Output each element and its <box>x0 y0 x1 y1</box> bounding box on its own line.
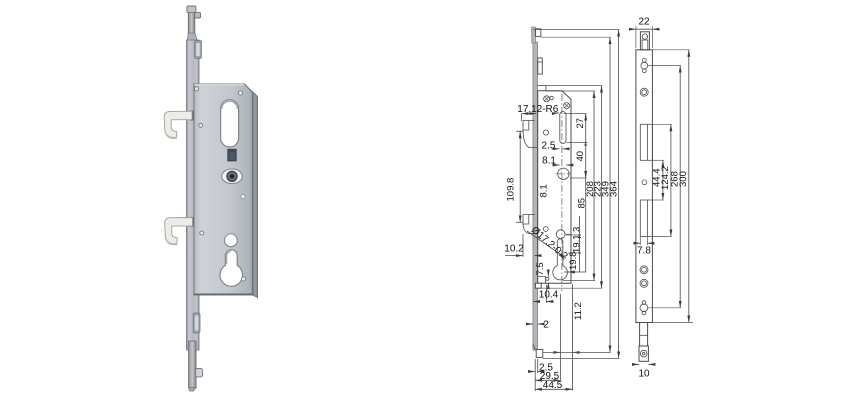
svg-text:40: 40 <box>575 151 586 162</box>
svg-text:7.5: 7.5 <box>535 262 546 275</box>
svg-text:22: 22 <box>638 17 650 28</box>
svg-text:2: 2 <box>543 320 549 331</box>
svg-text:8.1: 8.1 <box>539 184 550 197</box>
svg-text:3: 3 <box>571 227 582 232</box>
svg-text:27: 27 <box>575 118 586 129</box>
svg-text:10.2: 10.2 <box>504 244 524 255</box>
svg-text:19.8: 19.8 <box>568 252 579 271</box>
svg-text:109.8: 109.8 <box>506 178 517 202</box>
svg-text:10.4: 10.4 <box>539 290 559 301</box>
svg-text:300: 300 <box>678 171 689 187</box>
svg-text:10: 10 <box>638 369 650 380</box>
svg-text:7.8: 7.8 <box>637 246 651 257</box>
svg-text:11.2: 11.2 <box>573 302 584 320</box>
svg-text:364: 364 <box>608 181 619 197</box>
svg-text:2.5: 2.5 <box>542 141 556 152</box>
